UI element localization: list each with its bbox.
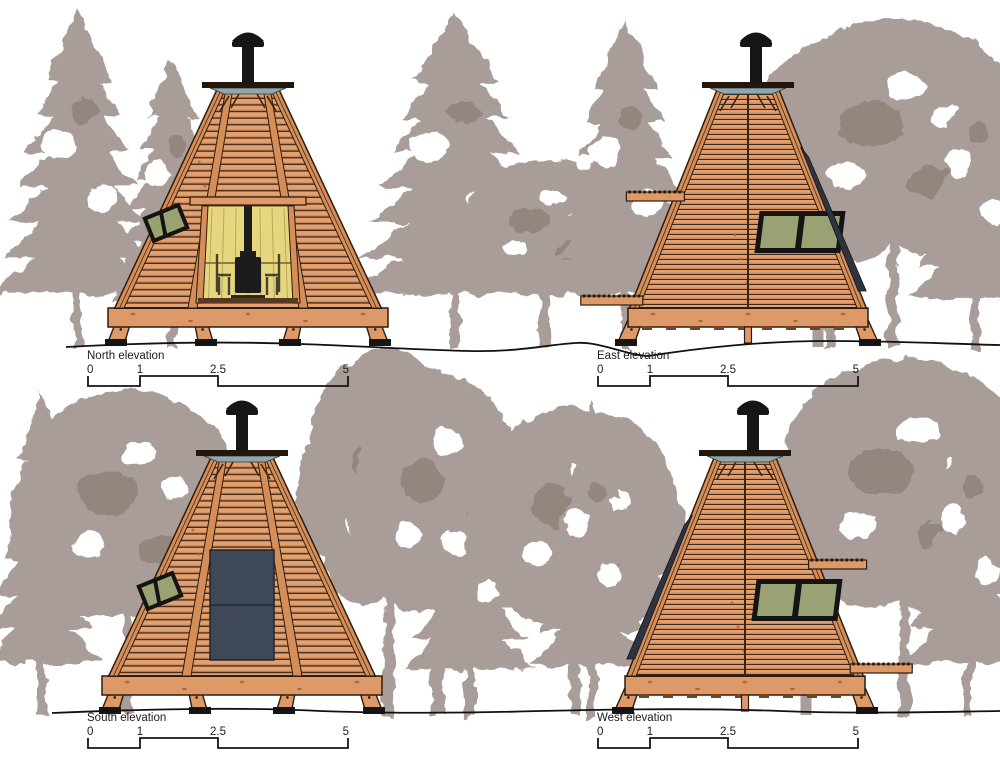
elevation-label-east: East elevation <box>597 350 864 362</box>
scale-tick-label: 0 <box>87 726 93 738</box>
caption-east: East elevation 0 1 2.5 5 <box>596 350 864 389</box>
chimney <box>232 33 264 84</box>
scale-tick-label: 5 <box>853 726 859 738</box>
scale-tick-label: 0 <box>597 726 603 738</box>
leg-foot <box>615 339 637 346</box>
cap-board <box>702 82 794 88</box>
center-post <box>742 695 749 711</box>
leg-foot <box>859 339 881 346</box>
scale-tick-label: 2.5 <box>210 726 226 738</box>
drawing-sheet: North elevation 0 1 2.5 5 East elevation… <box>0 0 1000 773</box>
solar-panel <box>210 550 274 660</box>
skylight <box>710 88 786 94</box>
scale-tick-label: 1 <box>137 726 143 738</box>
scale-tick-label: 1 <box>647 364 653 376</box>
deck-band <box>102 676 382 695</box>
skylight <box>707 456 783 462</box>
elevation-label-west: West elevation <box>597 712 864 724</box>
caption-north: North elevation 0 1 2.5 5 <box>86 350 354 389</box>
deck-band <box>108 308 388 327</box>
scale-bar-east: 0 1 2.5 5 <box>596 363 864 389</box>
center-post <box>745 327 752 343</box>
scale-tick-label: 5 <box>343 364 349 376</box>
scale-tick-label: 0 <box>87 364 93 376</box>
door-lintel <box>190 197 306 205</box>
scale-bar-west: 0 1 2.5 5 <box>596 725 864 751</box>
skylight <box>210 88 286 94</box>
scale-tick-label: 5 <box>853 364 859 376</box>
caption-south: South elevation 0 1 2.5 5 <box>86 712 354 751</box>
chimney <box>737 401 769 452</box>
scale-bar-north: 0 1 2.5 5 <box>86 363 354 389</box>
threshold-board <box>198 298 298 303</box>
leg-foot <box>369 339 391 346</box>
scale-tick-label: 0 <box>597 364 603 376</box>
scale-bar-line <box>598 738 858 748</box>
scale-tick-label: 1 <box>647 726 653 738</box>
scale-bar-line <box>598 376 858 386</box>
scale-bar-south: 0 1 2.5 5 <box>86 725 354 751</box>
deck-band <box>628 308 868 327</box>
scale-tick-label: 2.5 <box>720 364 736 376</box>
scale-bar-line <box>88 376 348 386</box>
chimney <box>226 401 258 452</box>
leg-foot <box>279 339 301 346</box>
elevation-label-south: South elevation <box>87 712 354 724</box>
scale-tick-label: 1 <box>137 364 143 376</box>
skylight <box>204 456 280 462</box>
window <box>751 579 842 621</box>
scale-tick-label: 2.5 <box>210 364 226 376</box>
scale-tick-label: 5 <box>343 726 349 738</box>
cap-board <box>699 450 791 456</box>
elevation-label-north: North elevation <box>87 350 354 362</box>
door-opening <box>190 197 306 303</box>
chimney <box>740 33 772 84</box>
caption-west: West elevation 0 1 2.5 5 <box>596 712 864 751</box>
deck-band <box>625 676 865 695</box>
scale-tick-label: 2.5 <box>720 726 736 738</box>
scale-bar-line <box>88 738 348 748</box>
